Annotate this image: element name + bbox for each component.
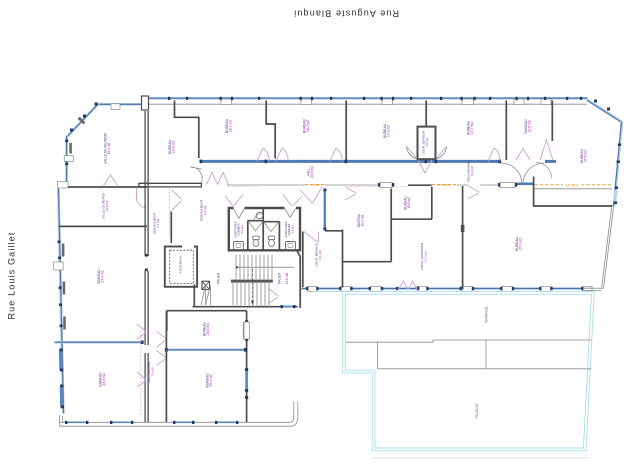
svg-text:7.6 m2: 7.6 m2 [156, 219, 160, 229]
svg-text:STORES: STORES [565, 183, 578, 187]
svg-text:Rue Auguste Blanqui: Rue Auguste Blanqui [293, 9, 399, 19]
svg-text:27.5 m2: 27.5 m2 [583, 150, 587, 162]
svg-text:8.2 m2: 8.2 m2 [470, 166, 474, 176]
svg-text:14.6 m2: 14.6 m2 [171, 141, 175, 153]
svg-text:4.2 m2: 4.2 m2 [203, 206, 207, 216]
svg-text:24.9 m2: 24.9 m2 [102, 373, 106, 385]
svg-text:17.7 m2: 17.7 m2 [470, 122, 474, 134]
svg-text:12.6 m2: 12.6 m2 [105, 200, 109, 211]
svg-text:18.0 m2: 18.0 m2 [306, 120, 310, 132]
svg-text:TERRASSE: TERRASSE [485, 306, 489, 323]
svg-text:ASCENSEUR: ASCENSEUR [179, 256, 183, 274]
svg-text:14.6 m2: 14.6 m2 [285, 273, 289, 285]
svg-text:STORES: STORES [309, 183, 321, 187]
svg-text:25.0 m2: 25.0 m2 [209, 374, 213, 386]
svg-text:17.9 m2: 17.9 m2 [386, 125, 390, 137]
svg-text:Rue Louis Gaillet: Rue Louis Gaillet [7, 231, 17, 319]
svg-text:PELOUSE: PELOUSE [475, 403, 479, 418]
svg-text:PALIER: PALIER [217, 272, 221, 284]
svg-text:7.5 m2: 7.5 m2 [150, 367, 154, 377]
svg-text:PALIER: PALIER [278, 272, 282, 284]
svg-text:11.1 m2: 11.1 m2 [423, 251, 427, 262]
svg-text:24.6 m2: 24.6 m2 [206, 323, 210, 335]
svg-text:3.0 m2: 3.0 m2 [425, 138, 429, 147]
svg-text:24.5 m2: 24.5 m2 [310, 166, 314, 178]
svg-text:27.0 m2: 27.0 m2 [518, 238, 522, 250]
svg-text:10.9 m2: 10.9 m2 [360, 215, 364, 227]
svg-text:18.1 m2: 18.1 m2 [228, 120, 232, 132]
svg-text:15.4 m2: 15.4 m2 [107, 143, 111, 155]
svg-text:2.1 m2: 2.1 m2 [318, 250, 322, 260]
svg-text:10.8 m2: 10.8 m2 [407, 197, 411, 209]
svg-text:27.0 m2: 27.0 m2 [100, 270, 104, 282]
svg-text:12.5 m2: 12.5 m2 [527, 120, 531, 132]
svg-text:STORES: STORES [438, 183, 450, 187]
